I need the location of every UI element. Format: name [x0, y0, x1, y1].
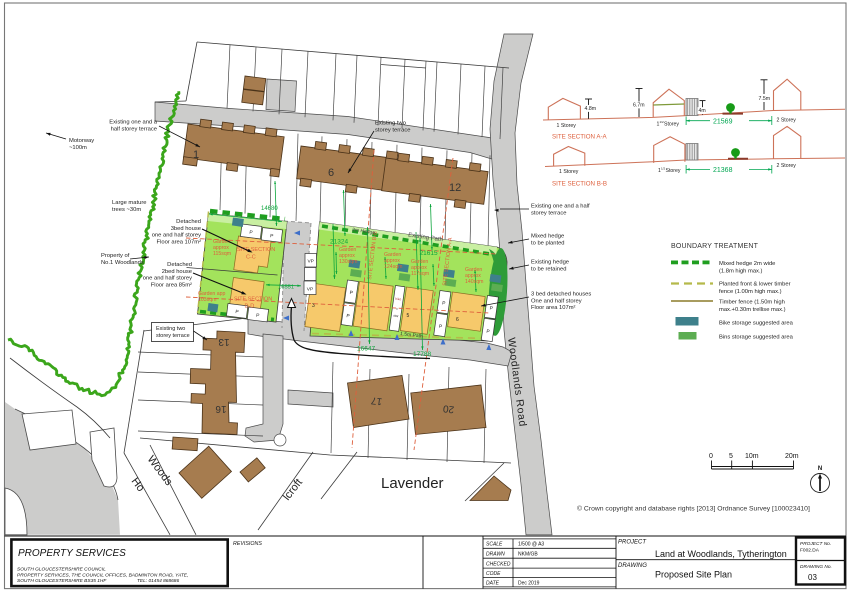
- svg-text:3bed house: 3bed house: [171, 226, 201, 232]
- svg-text:SCALE: SCALE: [486, 542, 503, 548]
- svg-text:3 bed detached houses: 3 bed detached houses: [531, 292, 591, 298]
- svg-text:SITE SECTION B-B: SITE SECTION B-B: [552, 181, 607, 188]
- svg-text:PROJECT: PROJECT: [618, 540, 647, 546]
- svg-text:124sqm: 124sqm: [384, 264, 402, 270]
- svg-text:to be planted: to be planted: [531, 240, 565, 246]
- svg-text:PROPERTY SERVICES: PROPERTY SERVICES: [18, 548, 126, 559]
- svg-text:Storey: Storey: [666, 168, 681, 174]
- svg-text:Floor area 85m²: Floor area 85m²: [151, 283, 192, 289]
- svg-text:fence (1.00m high max.): fence (1.00m high max.): [719, 289, 782, 295]
- svg-text:SOUTH GLOUCESTERSHIRE COUNCIL: SOUTH GLOUCESTERSHIRE COUNCIL: [17, 567, 106, 573]
- svg-text:to be retained: to be retained: [531, 266, 566, 272]
- svg-text:Existing one and a half: Existing one and a half: [531, 204, 590, 210]
- svg-text:Detached: Detached: [167, 262, 192, 268]
- svg-text:140sqm: 140sqm: [465, 279, 483, 285]
- svg-text:21324: 21324: [330, 239, 348, 246]
- svg-text:Timber fence (1.50m high: Timber fence (1.50m high: [719, 300, 785, 306]
- svg-text:one and half storey: one and half storey: [143, 276, 192, 282]
- svg-text:5: 5: [407, 313, 410, 319]
- svg-text:Bins storage suggested area: Bins storage suggested area: [719, 335, 794, 341]
- svg-text:VP: VP: [307, 287, 313, 293]
- svg-text:1 Storey: 1 Storey: [559, 169, 579, 175]
- svg-text:trees ~30m: trees ~30m: [112, 207, 141, 213]
- svg-text:No.1 Woodlands: No.1 Woodlands: [101, 260, 144, 266]
- svg-text:CODE: CODE: [486, 571, 501, 577]
- svg-text:~100m: ~100m: [69, 145, 87, 151]
- svg-text:4.8m: 4.8m: [585, 106, 597, 112]
- svg-text:REVISIONS: REVISIONS: [233, 541, 262, 547]
- svg-text:TEL: 01454 868686: TEL: 01454 868686: [137, 578, 179, 584]
- svg-text:21615: 21615: [420, 250, 438, 257]
- svg-text:Existing two: Existing two: [156, 326, 185, 332]
- svg-text:10m: 10m: [745, 453, 759, 460]
- svg-text:N: N: [818, 466, 822, 472]
- svg-text:21368: 21368: [713, 167, 733, 174]
- svg-text:(1.8m high max.): (1.8m high max.): [719, 269, 763, 275]
- svg-text:NKM/GB: NKM/GB: [518, 551, 538, 557]
- svg-text:D-D: D-D: [245, 304, 255, 310]
- svg-text:SITE SECTION: SITE SECTION: [234, 297, 272, 303]
- svg-text:Planted front & lower timber: Planted front & lower timber: [719, 282, 791, 288]
- svg-text:Floor area 107m²: Floor area 107m²: [531, 305, 576, 311]
- svg-text:6: 6: [456, 317, 459, 323]
- svg-text:Motorway: Motorway: [69, 138, 94, 144]
- svg-text:Bike storage suggested area: Bike storage suggested area: [719, 321, 794, 327]
- svg-text:7.5m: 7.5m: [759, 96, 771, 102]
- svg-text:VP: VP: [307, 259, 313, 265]
- svg-text:Large mature: Large mature: [112, 200, 146, 206]
- svg-text:117sqm: 117sqm: [411, 271, 429, 277]
- svg-text:21569: 21569: [713, 118, 733, 125]
- svg-text:17: 17: [370, 394, 383, 406]
- svg-text:storey terrace: storey terrace: [531, 210, 566, 216]
- svg-text:PROPERTY SERVICES, THE COUNCIL: PROPERTY SERVICES, THE COUNCIL OFFICES, …: [17, 572, 188, 578]
- svg-text:storey terrace: storey terrace: [156, 333, 190, 339]
- svg-text:115sqm: 115sqm: [213, 251, 231, 257]
- svg-text:Existing two: Existing two: [375, 121, 406, 127]
- svg-text:Proposed Site Plan: Proposed Site Plan: [655, 570, 732, 580]
- svg-text:BOUNDARY TREATMENT: BOUNDARY TREATMENT: [671, 243, 759, 250]
- svg-text:130sqm: 130sqm: [339, 259, 357, 265]
- svg-text:2bed house: 2bed house: [162, 269, 192, 275]
- svg-text:bike: bike: [395, 297, 402, 302]
- svg-text:max.+0.30m trellise max.): max.+0.30m trellise max.): [719, 307, 786, 313]
- svg-text:Detached: Detached: [176, 219, 201, 225]
- svg-text:20m: 20m: [785, 453, 799, 460]
- svg-text:one and half storey: one and half storey: [152, 233, 201, 239]
- svg-text:C-C: C-C: [246, 255, 256, 261]
- svg-text:4m: 4m: [699, 108, 706, 114]
- svg-text:DRAWING No.: DRAWING No.: [800, 564, 832, 570]
- svg-text:20: 20: [442, 402, 455, 414]
- svg-text:Mixed hedge: Mixed hedge: [531, 234, 564, 240]
- svg-text:Floor area 107m²: Floor area 107m²: [157, 240, 202, 246]
- svg-text:1/500 @ A3: 1/500 @ A3: [518, 542, 544, 548]
- svg-text:16551: 16551: [278, 285, 294, 291]
- svg-text:13: 13: [218, 336, 230, 347]
- svg-text:Land at Woodlands, Tytheringto: Land at Woodlands, Tytherington: [655, 549, 787, 559]
- svg-text:SITE SECTION A-A: SITE SECTION A-A: [552, 134, 608, 141]
- svg-text:0: 0: [709, 453, 713, 460]
- svg-text:Property of: Property of: [101, 253, 130, 259]
- svg-text:Lavender: Lavender: [381, 475, 444, 492]
- svg-text:16647: 16647: [357, 346, 375, 353]
- svg-text:DRAWING: DRAWING: [618, 563, 647, 569]
- svg-text:2 Storey: 2 Storey: [777, 163, 797, 169]
- svg-text:2 Storey: 2 Storey: [777, 118, 797, 124]
- svg-text:Dec 2019: Dec 2019: [518, 580, 540, 586]
- svg-text:© Crown copyright and database: © Crown copyright and database rights [2…: [577, 505, 810, 513]
- svg-text:storey terrace: storey terrace: [375, 127, 410, 133]
- svg-text:17788: 17788: [413, 351, 431, 358]
- svg-text:DATE: DATE: [486, 580, 500, 586]
- svg-text:half storey terrace: half storey terrace: [111, 126, 157, 132]
- svg-text:12: 12: [449, 182, 461, 194]
- svg-text:16: 16: [215, 403, 227, 414]
- svg-text:Existing one and a: Existing one and a: [109, 120, 157, 126]
- svg-text:Mixed hedge 2m wide: Mixed hedge 2m wide: [719, 261, 775, 267]
- svg-text:03: 03: [808, 573, 817, 582]
- svg-text:6: 6: [328, 167, 334, 179]
- svg-text:One and half storey: One and half storey: [531, 298, 582, 304]
- svg-text:SOUTH GLOUCESTERSHIRE BS35 1HF: SOUTH GLOUCESTERSHIRE BS35 1HF: [17, 578, 107, 584]
- svg-text:DRAWN: DRAWN: [486, 551, 505, 557]
- svg-text:1: 1: [193, 149, 199, 161]
- svg-text:1 Storey: 1 Storey: [557, 123, 577, 129]
- svg-text:Existing hedge: Existing hedge: [531, 260, 569, 266]
- svg-text:6.7m: 6.7m: [633, 103, 645, 109]
- svg-text:F002.DA: F002.DA: [800, 548, 820, 554]
- svg-text:PROJECT No.: PROJECT No.: [800, 541, 831, 547]
- svg-text:5: 5: [729, 453, 733, 460]
- svg-text:103sqm: 103sqm: [198, 297, 216, 303]
- svg-text:Storey: Storey: [664, 122, 679, 128]
- svg-text:CHECKED: CHECKED: [486, 561, 511, 567]
